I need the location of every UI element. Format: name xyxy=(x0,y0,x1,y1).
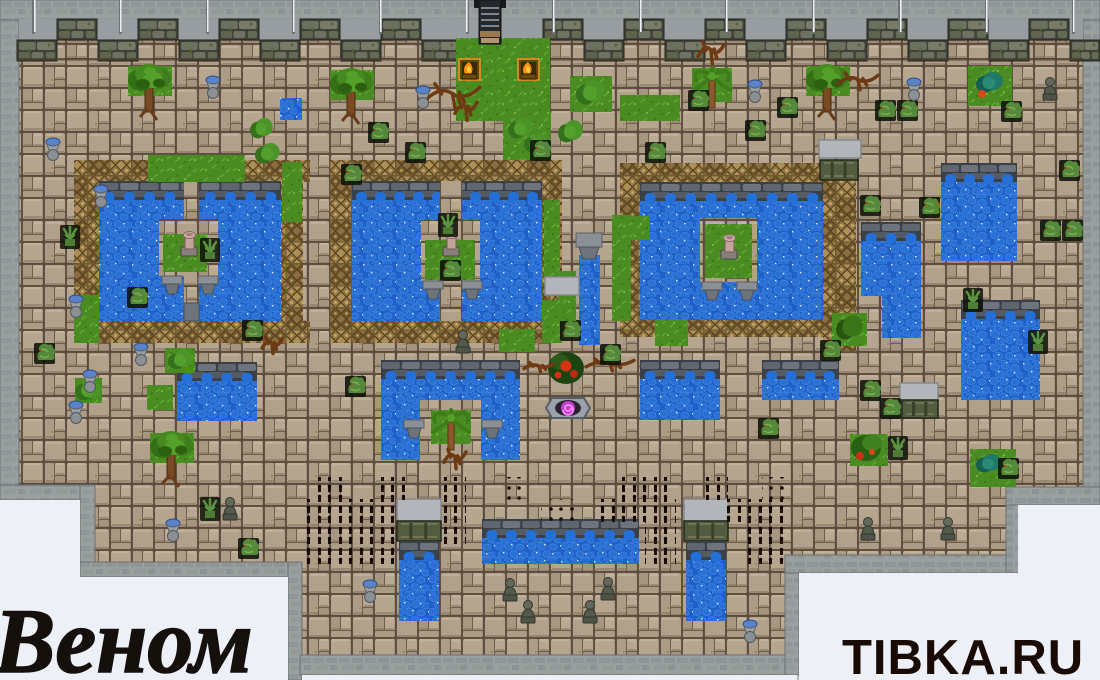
svg-text:TIBKA.RU: TIBKA.RU xyxy=(842,631,1084,680)
svg-text:Веном: Веном xyxy=(0,590,253,680)
